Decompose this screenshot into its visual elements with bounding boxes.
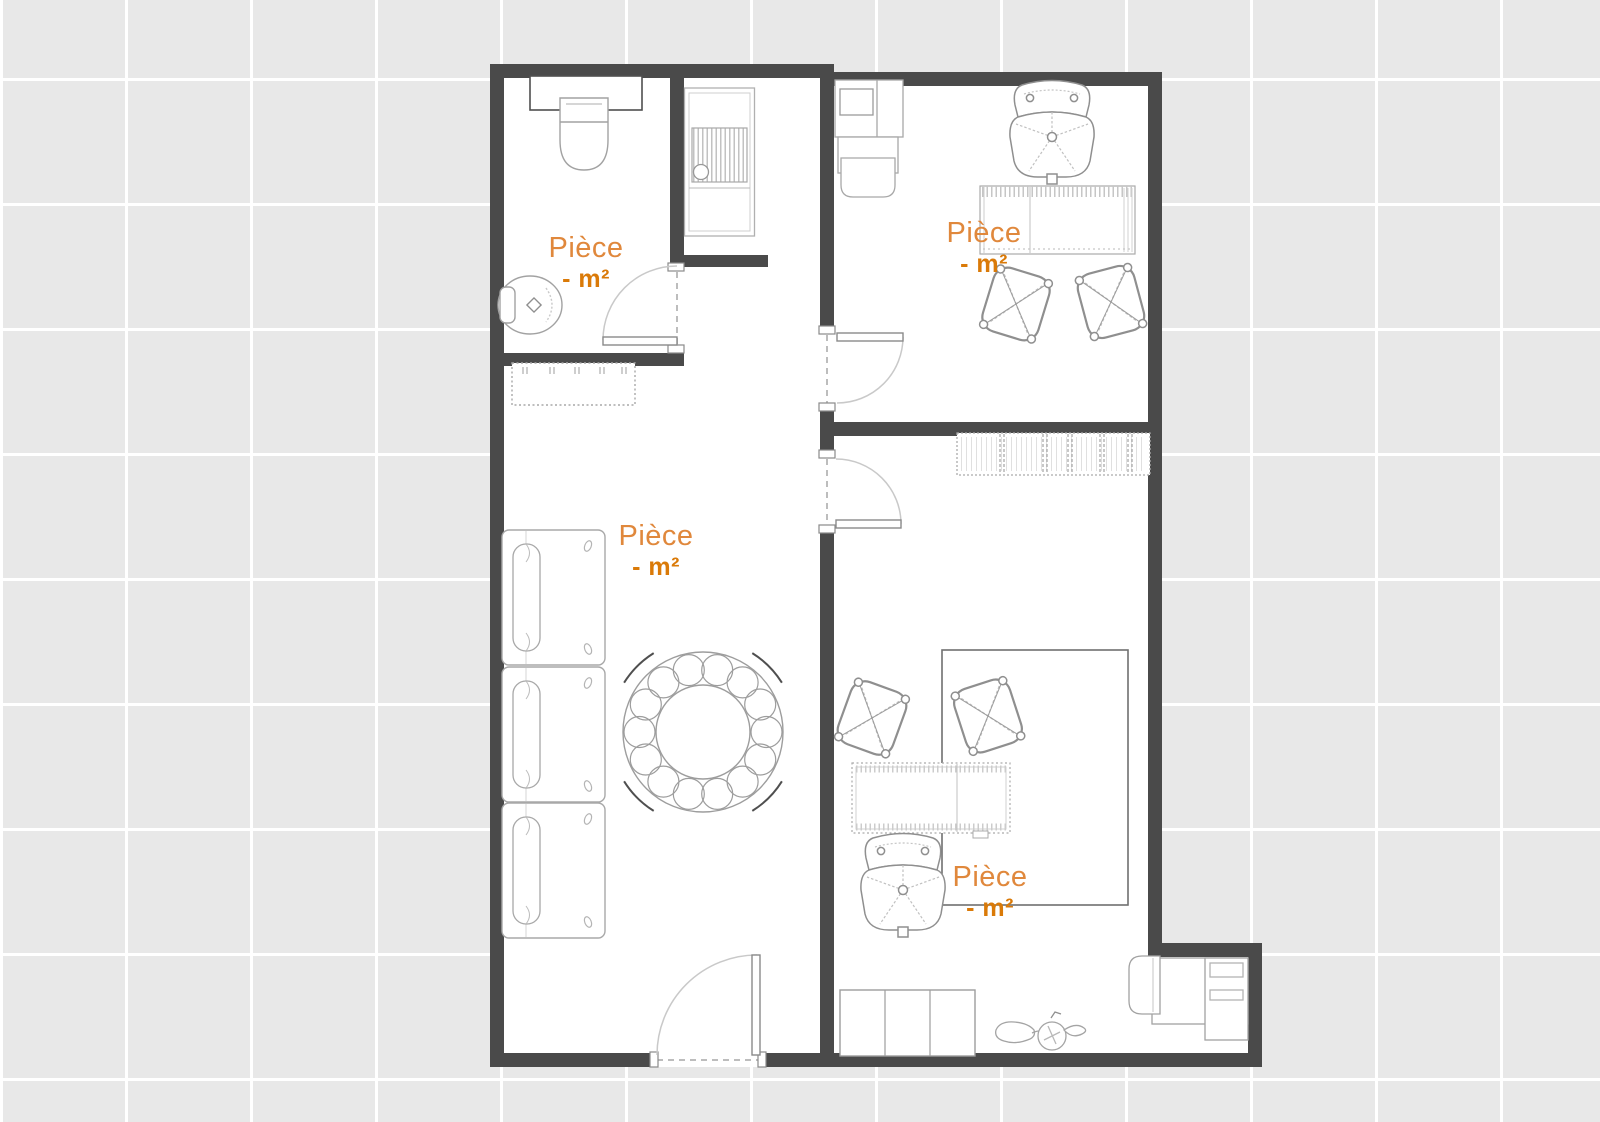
wall-alcove-top bbox=[1148, 943, 1262, 957]
room-name: Pièce bbox=[618, 522, 693, 552]
wall-right bbox=[1148, 72, 1162, 957]
floor-plan bbox=[0, 0, 1600, 1122]
wall-middle-top bbox=[820, 64, 834, 333]
office-chair-bottom[interactable] bbox=[861, 834, 945, 938]
single-bed-1[interactable] bbox=[502, 530, 605, 665]
single-bed-3[interactable] bbox=[502, 803, 605, 938]
room-area: - m² bbox=[952, 896, 1027, 922]
room-area: - m² bbox=[946, 252, 1021, 278]
room-label-office-bottom-right[interactable]: Pièce - m² bbox=[952, 863, 1027, 921]
desk-bottom-right[interactable] bbox=[852, 763, 1010, 838]
office-chair-top[interactable] bbox=[1010, 81, 1094, 185]
room-label-office-top-right[interactable]: Pièce - m² bbox=[946, 219, 1021, 277]
wall-bottom-a bbox=[490, 1053, 655, 1067]
wall-closet-stub bbox=[684, 255, 768, 267]
room-name: Pièce bbox=[548, 234, 623, 264]
wall-bathroom-right bbox=[670, 64, 684, 270]
room-area: - m² bbox=[548, 267, 623, 293]
floor-plan-canvas: Pièce - m² Pièce - m² Pièce - m² Pièce -… bbox=[0, 0, 1600, 1122]
wall-bottom-b bbox=[762, 1053, 1262, 1067]
washbasin[interactable] bbox=[560, 98, 608, 170]
room-area: - m² bbox=[618, 555, 693, 581]
cabinet-unit[interactable] bbox=[835, 80, 903, 197]
washing-machine[interactable] bbox=[685, 88, 755, 236]
room-name: Pièce bbox=[952, 863, 1027, 893]
room-label-bathroom[interactable]: Pièce - m² bbox=[548, 234, 623, 292]
shelf-unit[interactable] bbox=[957, 433, 1150, 475]
radiator[interactable] bbox=[512, 363, 635, 405]
wall-alcove-right bbox=[1248, 943, 1262, 1067]
round-table[interactable] bbox=[623, 652, 783, 812]
wall-middle-bottom bbox=[820, 530, 834, 1067]
single-bed-2[interactable] bbox=[502, 667, 605, 802]
desk-chair[interactable] bbox=[1129, 956, 1160, 1014]
wardrobe[interactable] bbox=[840, 990, 975, 1056]
room-name: Pièce bbox=[946, 219, 1021, 249]
room-label-living-room[interactable]: Pièce - m² bbox=[618, 522, 693, 580]
